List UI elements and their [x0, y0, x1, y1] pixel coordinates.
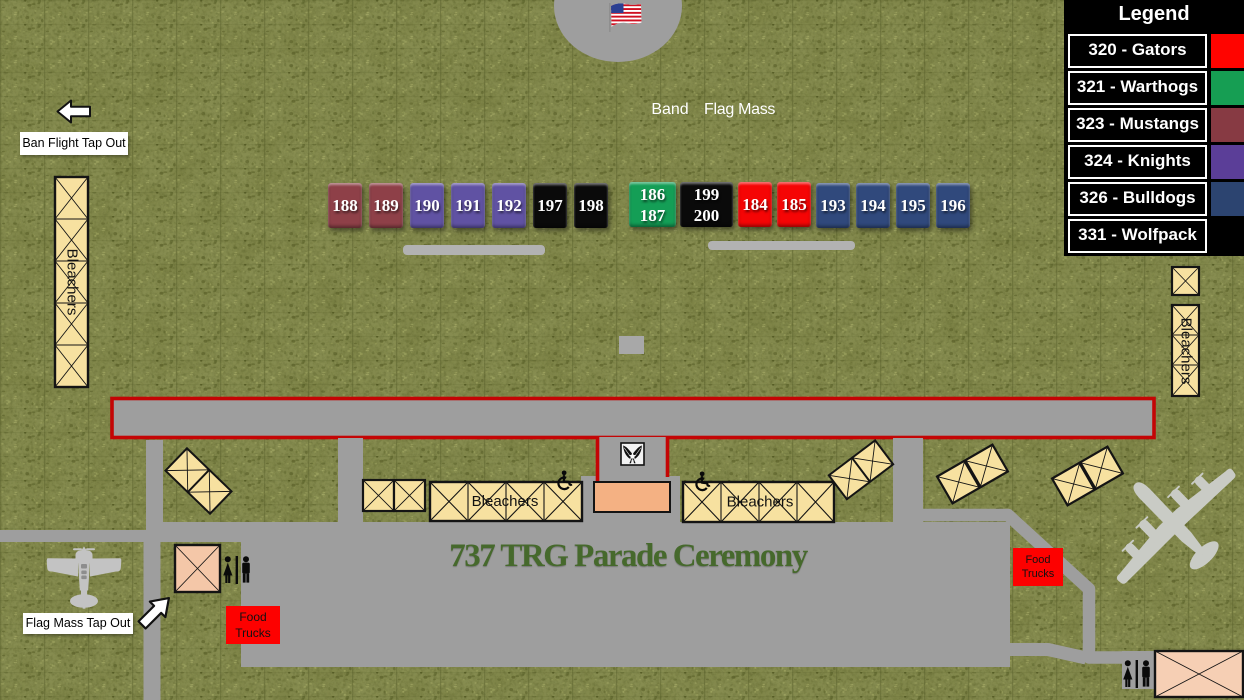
- svg-text:Bleachers: Bleachers: [64, 249, 81, 316]
- svg-text:Bleachers: Bleachers: [472, 493, 539, 510]
- svg-text:Bleachers: Bleachers: [727, 493, 794, 510]
- svg-text:Bleachers: Bleachers: [1178, 318, 1195, 385]
